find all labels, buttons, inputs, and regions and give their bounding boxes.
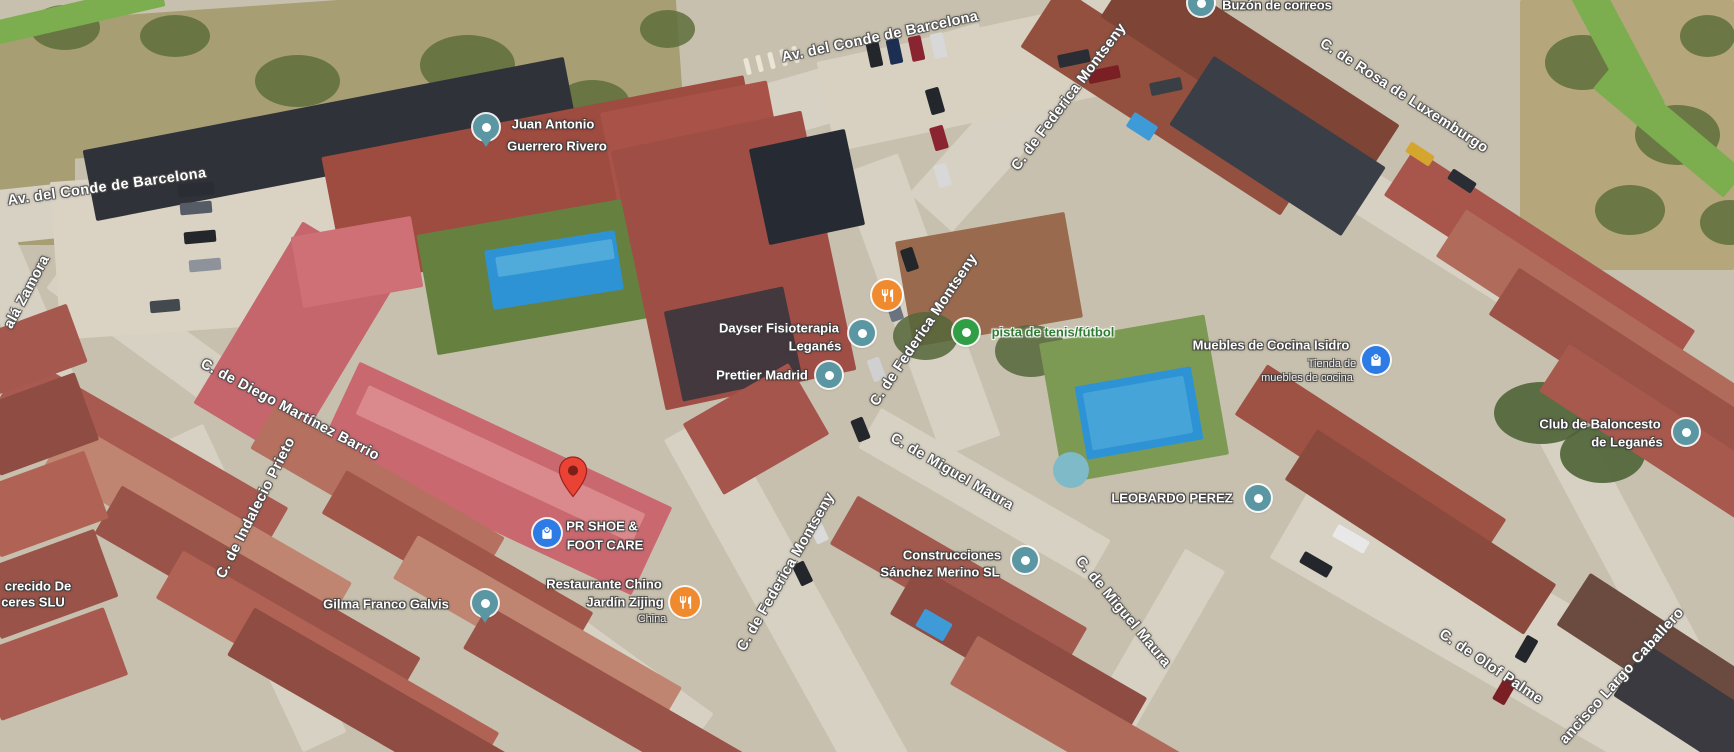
- street-label-rosa-de-luxemburgo: C. de Rosa de Luxemburgo: [1317, 36, 1491, 157]
- shopping-icon[interactable]: [1362, 346, 1390, 374]
- poi-label-dayser-fisioterapia-leganes-line1[interactable]: Dayser Fisioterapia: [719, 321, 839, 336]
- poi-label-leobardo-perez[interactable]: LEOBARDO PEREZ: [1111, 491, 1232, 506]
- street-label-olof-palme: C. de Olof Palme: [1436, 626, 1546, 707]
- poi-label-muebles-de-cocina-isidro-line3[interactable]: muebles de cocina: [1261, 372, 1353, 384]
- poi-label-dayser-fisioterapia-leganes-line2[interactable]: Leganés: [789, 339, 842, 354]
- place-icon[interactable]: [816, 362, 842, 388]
- street-label-zamora: alá Zamora: [1, 253, 53, 332]
- street-label-largo-caballero: ancisco Largo Caballero: [1557, 605, 1688, 748]
- place-icon[interactable]: [472, 590, 498, 616]
- street-label-miguel-maura-south: C. de Miguel Maura: [1072, 553, 1174, 670]
- poi-label-pr-shoe-foot-care-line2[interactable]: FOOT CARE: [567, 538, 644, 553]
- street-label-federica-montseny-south: C. de Federica Montseny: [734, 490, 838, 654]
- poi-label-pr-shoe-foot-care-line1[interactable]: PR SHOE &: [566, 519, 638, 534]
- place-icon[interactable]: [473, 114, 499, 140]
- poi-label-club-de-baloncesto-de-leganes-line2[interactable]: de Leganés: [1591, 435, 1663, 450]
- poi-label-club-de-baloncesto-de-leganes-line1[interactable]: Club de Baloncesto: [1539, 417, 1660, 432]
- poi-label-pista-de-tenis-futbol[interactable]: pista de tenis/fútbol: [992, 325, 1115, 340]
- poi-label-buzon-de-correos[interactable]: Buzón de correos: [1222, 0, 1332, 13]
- place-icon[interactable]: [1188, 0, 1214, 16]
- poi-label-restaurante-chino-jardin-zijing-line2[interactable]: Jardín Zijing: [586, 595, 663, 610]
- shopping-icon[interactable]: [533, 519, 561, 547]
- satellite-map[interactable]: Av. del Conde de BarcelonaAv. del Conde …: [0, 0, 1734, 752]
- street-label-indalecio-prieto: C. de Indalecio Prieto: [213, 435, 298, 581]
- poi-label-construcciones-sanchez-merino-line2[interactable]: Sánchez Merino SL: [880, 565, 999, 580]
- poi-label-juan-antonio-guerrero-rivero-line1[interactable]: Juan Antonio: [512, 117, 595, 132]
- street-label-miguel-maura-west: C. de Miguel Maura: [888, 430, 1017, 514]
- poi-label-construcciones-sanchez-merino-line1[interactable]: Construcciones: [903, 548, 1001, 563]
- poi-label-edge-business-line1[interactable]: crecido De: [5, 579, 71, 594]
- marker-tail: [479, 614, 491, 623]
- street-label-av-conde-barcelona-top: Av. del Conde de Barcelona: [780, 8, 980, 65]
- street-label-av-conde-barcelona-left: Av. del Conde de Barcelona: [7, 165, 208, 209]
- place-icon[interactable]: [1245, 485, 1271, 511]
- street-label-federica-montseny-north: C. de Federica Montseny: [1008, 20, 1129, 173]
- poi-label-gilma-franco-galvis[interactable]: Gilma Franco Galvis: [323, 597, 449, 612]
- restaurant-icon[interactable]: [872, 280, 902, 310]
- labels-layer: Av. del Conde de BarcelonaAv. del Conde …: [0, 0, 1734, 752]
- marker-tail: [480, 138, 492, 147]
- poi-label-muebles-de-cocina-isidro-line2[interactable]: Tienda de: [1308, 358, 1357, 370]
- poi-label-muebles-de-cocina-isidro-line1[interactable]: Muebles de Cocina Isidro: [1193, 338, 1350, 353]
- restaurant-icon[interactable]: [670, 587, 700, 617]
- place-icon[interactable]: [1673, 419, 1699, 445]
- sports-icon[interactable]: [953, 319, 979, 345]
- place-icon[interactable]: [1012, 547, 1038, 573]
- poi-label-juan-antonio-guerrero-rivero-line2[interactable]: Guerrero Rivero: [507, 139, 607, 154]
- poi-label-edge-business-line2[interactable]: ceres SLU: [1, 595, 65, 610]
- poi-label-restaurante-chino-jardin-zijing-line1[interactable]: Restaurante Chino: [546, 577, 662, 592]
- poi-label-prettier-madrid[interactable]: Prettier Madrid: [716, 368, 808, 383]
- place-icon[interactable]: [849, 320, 875, 346]
- poi-label-restaurante-chino-jardin-zijing-line3[interactable]: China: [638, 613, 667, 625]
- destination-pin-icon[interactable]: [558, 456, 588, 503]
